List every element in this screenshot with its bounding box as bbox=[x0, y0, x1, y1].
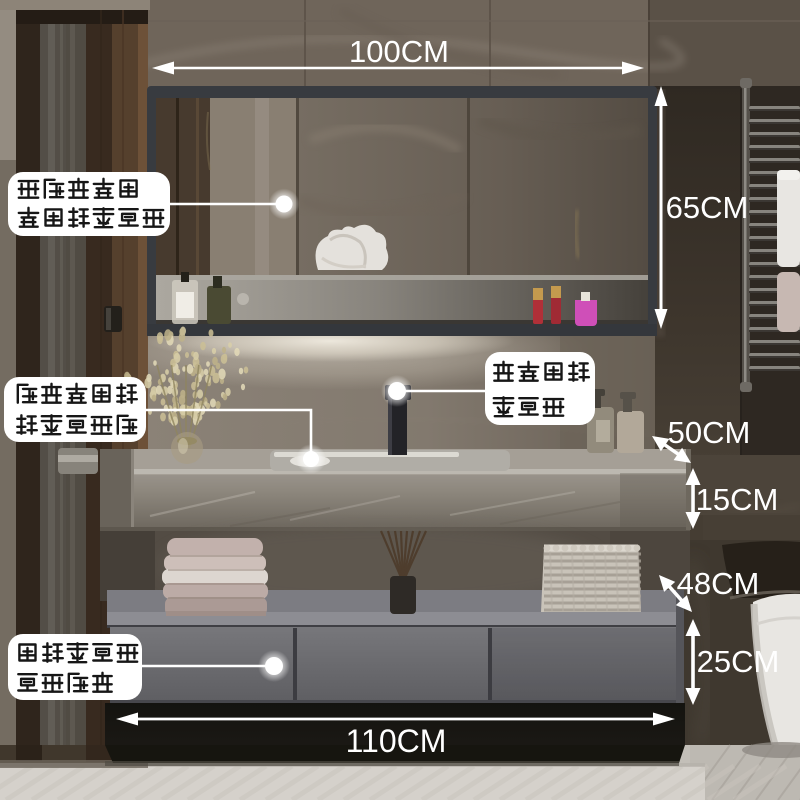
svg-text:110CM: 110CM bbox=[346, 723, 447, 759]
svg-text:50CM: 50CM bbox=[668, 415, 751, 450]
svg-text:15CM: 15CM bbox=[696, 482, 779, 517]
svg-text:48CM: 48CM bbox=[677, 566, 760, 601]
svg-text:25CM: 25CM bbox=[697, 644, 780, 679]
svg-text:65CM: 65CM bbox=[666, 190, 749, 225]
svg-text:100CM: 100CM bbox=[349, 34, 449, 69]
